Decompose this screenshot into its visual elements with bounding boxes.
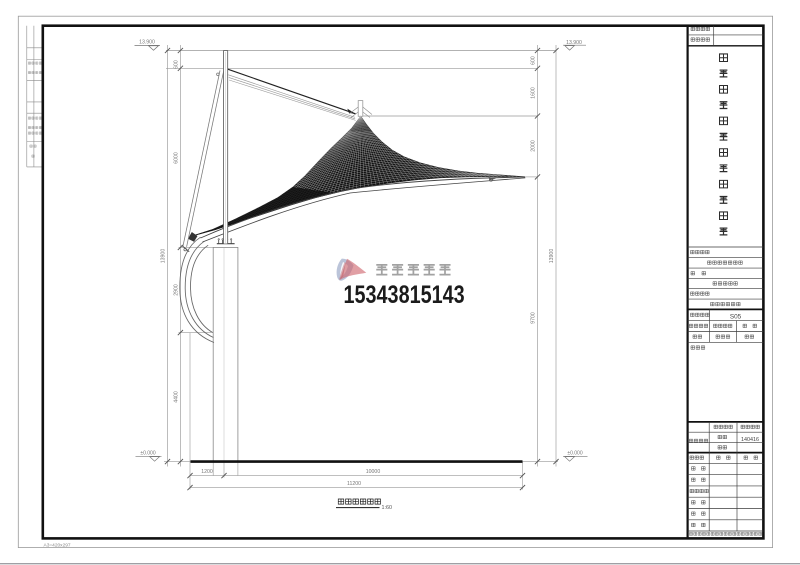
svg-text:A3=420x297: A3=420x297: [44, 542, 71, 548]
svg-text:13900: 13900: [161, 249, 167, 264]
svg-text:140416: 140416: [741, 437, 759, 443]
svg-text:13.900: 13.900: [139, 40, 155, 46]
svg-text:1200: 1200: [201, 469, 213, 475]
svg-text:9700: 9700: [531, 312, 537, 324]
svg-text:600: 600: [531, 56, 537, 65]
svg-text:1600: 1600: [531, 87, 537, 99]
svg-text:4400: 4400: [174, 391, 180, 403]
svg-text:S05: S05: [730, 314, 742, 321]
svg-text:10000: 10000: [366, 469, 381, 475]
svg-text:6000: 6000: [174, 152, 180, 164]
svg-text:±0.000: ±0.000: [567, 451, 582, 457]
svg-text:13900: 13900: [549, 249, 555, 264]
svg-text:15343815143: 15343815143: [344, 280, 465, 309]
svg-text:1:60: 1:60: [382, 505, 393, 511]
svg-text:2000: 2000: [531, 140, 537, 152]
svg-text:600: 600: [174, 60, 180, 69]
svg-text:±0.000: ±0.000: [140, 451, 155, 457]
svg-text:11200: 11200: [347, 481, 361, 487]
svg-text:2900: 2900: [174, 284, 180, 296]
